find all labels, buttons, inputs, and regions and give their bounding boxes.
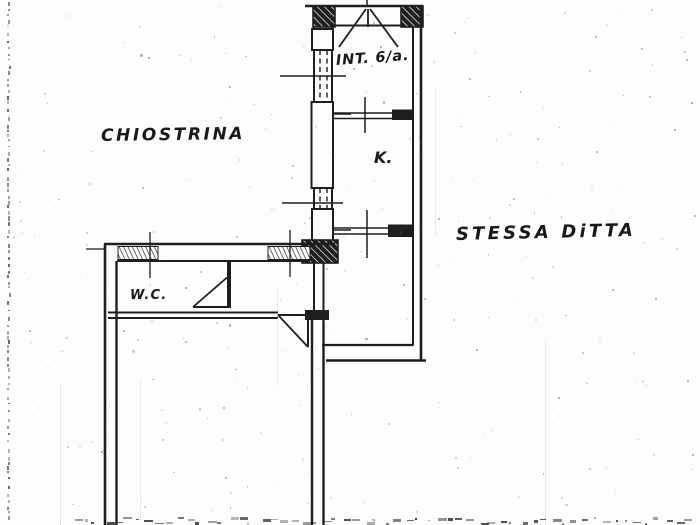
scan-artifact-line (545, 340, 546, 525)
entrance-door-swing (339, 9, 398, 47)
label-kitchen: K. (374, 148, 392, 167)
right-wall (413, 6, 421, 361)
kitchen-bottom-partition (333, 210, 413, 258)
label-chiostrina: CHIOSTRINA (101, 124, 245, 146)
floor-plan-drawing (0, 0, 700, 525)
scan-artifact-line (277, 290, 278, 385)
hall-east-wall (314, 263, 324, 312)
scanned-floor-plan: CHIOSTRINA INT. 6/a. K. W.C. STESSA DiTT… (0, 0, 700, 525)
window-hatch (118, 247, 158, 260)
room-door-swing (278, 315, 308, 347)
scan-artifact-line (435, 88, 436, 235)
scan-artifact-line (60, 385, 61, 525)
wall-pier (312, 209, 333, 241)
label-wc: W.C. (130, 288, 167, 303)
lower-room-walls (312, 315, 426, 525)
chiostrina-wall (86, 230, 335, 278)
wall-hatch-top-left (313, 6, 335, 27)
wall-pier (312, 102, 334, 188)
wc-door-swing (193, 278, 228, 308)
left-outer-wall (105, 244, 117, 525)
label-stessa-ditta: STESSA DiTTA (456, 220, 636, 245)
window-hatch (268, 247, 310, 260)
scan-artifact-line (140, 380, 141, 520)
wall-pier (312, 29, 333, 50)
top-wall (305, 0, 423, 27)
door-post (392, 110, 413, 121)
kitchen-top-partition (333, 97, 413, 133)
